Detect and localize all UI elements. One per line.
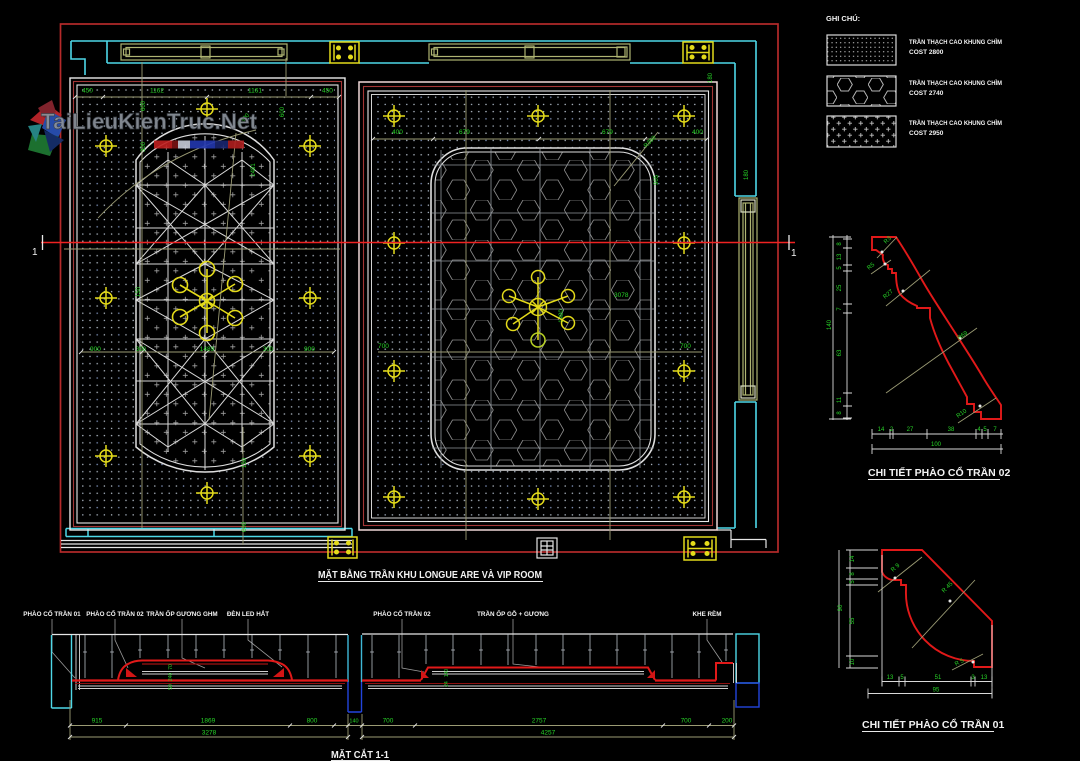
svg-text:11: 11 [837, 396, 843, 403]
svg-text:700: 700 [378, 343, 389, 350]
svg-text:95: 95 [933, 688, 940, 694]
svg-text:PHÀO CỔ TRẦN 01: PHÀO CỔ TRẦN 01 [23, 608, 81, 618]
svg-text:COST 2740: COST 2740 [909, 90, 944, 97]
svg-text:450: 450 [82, 88, 93, 95]
svg-text:14: 14 [850, 555, 856, 562]
svg-text:TRẦN ỐP GƯƠNG GHM: TRẦN ỐP GƯƠNG GHM [146, 608, 217, 618]
svg-text:450: 450 [322, 88, 333, 95]
svg-text:70: 70 [168, 664, 174, 670]
svg-text:PHÀO CỔ TRẦN 02: PHÀO CỔ TRẦN 02 [373, 608, 431, 618]
svg-text:5: 5 [837, 266, 843, 270]
svg-text:300: 300 [141, 141, 147, 152]
svg-text:700: 700 [680, 343, 691, 350]
svg-text:900: 900 [304, 346, 315, 353]
svg-text:700: 700 [383, 718, 394, 725]
svg-text:600: 600 [242, 521, 248, 532]
svg-text:27: 27 [907, 427, 914, 433]
svg-text:5: 5 [900, 675, 904, 681]
svg-text:13: 13 [981, 675, 988, 681]
svg-text:GHI CHÚ:: GHI CHÚ: [826, 14, 860, 23]
svg-text:38: 38 [948, 427, 955, 433]
svg-text:R5: R5 [866, 262, 876, 272]
svg-text:180: 180 [744, 169, 750, 180]
svg-text:TRẦN THẠCH CAO KHUNG CHÌM: TRẦN THẠCH CAO KHUNG CHÌM [909, 36, 1002, 46]
svg-text:5: 5 [983, 427, 987, 433]
svg-text:300: 300 [136, 347, 147, 353]
svg-text:400: 400 [392, 129, 403, 136]
svg-text:R27: R27 [882, 288, 895, 300]
svg-text:13: 13 [887, 675, 894, 681]
svg-text:140: 140 [444, 669, 450, 678]
svg-text:7: 7 [993, 427, 997, 433]
svg-text:R10: R10 [956, 408, 969, 420]
svg-text:63: 63 [837, 349, 843, 356]
svg-text:4257: 4257 [541, 730, 556, 737]
svg-text:915: 915 [92, 718, 103, 725]
svg-text:2757: 2757 [532, 718, 547, 725]
svg-text:240: 240 [168, 673, 174, 682]
svg-text:R 9: R 9 [890, 562, 901, 573]
svg-text:CHI TIẾT PHÀO CỔ TRẦN 01: CHI TIẾT PHÀO CỔ TRẦN 01 [862, 718, 1005, 731]
svg-text:200: 200 [722, 718, 733, 725]
svg-text:R69: R69 [957, 330, 970, 342]
svg-text:3278: 3278 [202, 730, 217, 737]
svg-text:MẶT BẰNG TRẦN KHU LONGUE ARE V: MẶT BẰNG TRẦN KHU LONGUE ARE VÀ VIP ROOM [318, 568, 542, 581]
svg-text:905: 905 [654, 174, 660, 185]
svg-text:700: 700 [681, 718, 692, 725]
svg-text:25: 25 [837, 284, 843, 291]
svg-text:8: 8 [850, 572, 856, 576]
svg-text:180: 180 [708, 72, 714, 83]
svg-text:1161: 1161 [248, 88, 262, 95]
svg-text:TRẦN THẠCH CAO KHUNG CHÌM: TRẦN THẠCH CAO KHUNG CHÌM [909, 77, 1002, 87]
svg-text:679: 679 [602, 129, 613, 136]
svg-text:140: 140 [349, 719, 358, 725]
svg-text:8: 8 [837, 242, 843, 246]
svg-text:1: 1 [791, 248, 797, 259]
svg-text:CHI TIẾT PHÀO CỔ TRẦN 02: CHI TIẾT PHÀO CỔ TRẦN 02 [868, 466, 1011, 479]
svg-text:900: 900 [90, 346, 101, 353]
svg-text:MẶT CẮT 1-1: MẶT CẮT 1-1 [331, 748, 389, 761]
svg-text:55: 55 [850, 617, 856, 624]
svg-text:KHE RÈM: KHE RÈM [692, 609, 721, 618]
svg-text:1481: 1481 [251, 163, 257, 177]
svg-text:TRẦN THẠCH CAO KHUNG CHÌM: TRẦN THẠCH CAO KHUNG CHÌM [909, 117, 1002, 127]
svg-text:14: 14 [878, 427, 885, 433]
svg-text:COST 2800: COST 2800 [909, 49, 944, 56]
svg-text:1162: 1162 [150, 88, 164, 95]
svg-text:1: 1 [32, 247, 38, 258]
svg-text:679: 679 [459, 129, 470, 136]
svg-text:1489: 1489 [200, 346, 215, 353]
svg-text:50: 50 [168, 684, 174, 690]
svg-text:600: 600 [280, 106, 286, 117]
svg-text:TRẦN ỐP GỖ + GƯƠNG: TRẦN ỐP GỖ + GƯƠNG [477, 608, 549, 618]
svg-text:90: 90 [838, 604, 844, 611]
svg-text:1869: 1869 [201, 718, 216, 725]
svg-text:TaiLieuKienTruc.Net: TaiLieuKienTruc.Net [41, 109, 258, 134]
svg-text:100: 100 [931, 442, 942, 448]
svg-text:7: 7 [837, 307, 843, 311]
svg-text:400: 400 [692, 129, 703, 136]
svg-text:300: 300 [263, 347, 274, 353]
svg-text:R 45: R 45 [941, 581, 955, 595]
svg-text:3078: 3078 [614, 292, 629, 299]
svg-text:4: 4 [977, 427, 981, 433]
svg-text:8: 8 [837, 411, 843, 415]
svg-text:150: 150 [136, 286, 142, 297]
svg-text:24: 24 [444, 681, 450, 687]
svg-text:150: 150 [242, 457, 248, 468]
svg-text:140: 140 [827, 319, 833, 330]
svg-text:800: 800 [307, 718, 318, 725]
svg-text:ĐÈN LED HẮT: ĐÈN LED HẮT [227, 609, 269, 618]
svg-text:13: 13 [837, 253, 843, 260]
svg-text:PHÀO CỔ TRẦN 02: PHÀO CỔ TRẦN 02 [86, 608, 144, 618]
svg-text:5: 5 [850, 580, 856, 584]
svg-text:COST 2950: COST 2950 [909, 130, 944, 137]
svg-text:51: 51 [935, 675, 942, 681]
svg-text:10: 10 [850, 658, 856, 665]
